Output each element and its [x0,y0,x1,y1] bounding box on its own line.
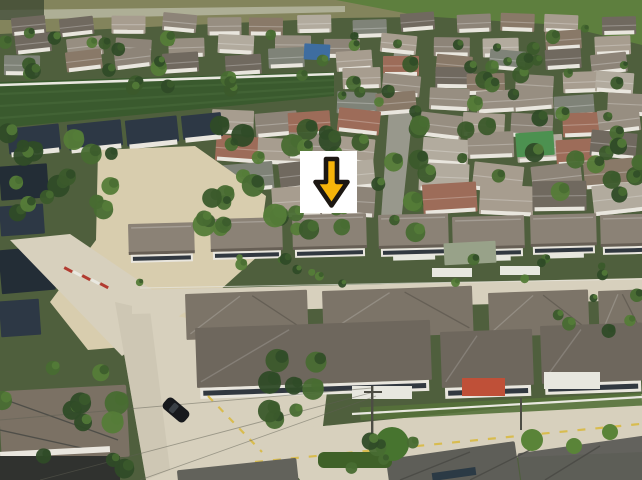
tree [48,31,61,44]
tree [224,76,236,88]
tree [627,170,640,183]
tree [24,27,35,38]
white-awning [432,268,472,277]
modern-house [600,214,642,255]
tree [566,150,584,168]
tree [381,85,394,98]
tree [531,110,548,127]
orange-awning [462,378,505,396]
tree [406,222,426,242]
arrow-marker [300,151,357,213]
tree [9,176,23,190]
house [337,107,381,135]
tree [210,116,230,136]
tree [98,37,110,49]
house [268,47,305,69]
house [65,48,103,72]
house [217,34,254,55]
tree [94,200,114,220]
tree [371,177,385,191]
house [59,16,95,38]
tree [59,168,76,185]
tree [296,70,307,81]
tree [602,324,616,338]
tree [46,361,60,375]
tree [551,182,570,201]
tree [25,63,41,79]
tree [265,30,276,41]
house [602,16,636,35]
white-awning [500,266,540,275]
tree [402,56,418,72]
tree [457,121,474,138]
tree [258,400,281,423]
tree [555,107,569,121]
tree [111,43,125,57]
tree [338,280,346,288]
tree [352,133,369,150]
tree [417,164,436,183]
tree [81,144,102,165]
house [500,13,535,32]
house [429,87,470,111]
tree [464,60,477,73]
tree [451,278,460,287]
tree [598,263,605,270]
house [422,181,478,214]
tree [338,91,347,100]
tree [389,215,400,226]
tree [126,81,140,95]
tree [106,453,120,467]
tree [319,129,342,152]
tree [478,117,496,135]
house [297,14,331,33]
tree [493,43,501,51]
tree [407,437,419,449]
aerial-scene [0,0,642,480]
tree [299,219,319,239]
tree [603,112,612,121]
tree [40,190,54,204]
tree [581,25,589,33]
house [467,131,514,159]
dark-bottom-roof [0,456,120,480]
tree [453,39,464,50]
tree [597,269,608,280]
tree [17,140,30,153]
tree [280,253,292,265]
tree [161,80,175,94]
tree [265,349,288,372]
tree [516,52,534,70]
tree [384,153,403,172]
tree [36,448,51,463]
tree [102,63,116,77]
tree [258,371,281,394]
tree [620,61,628,69]
tree [362,433,379,450]
tree [611,186,627,202]
tree [553,309,564,320]
tree [393,39,402,48]
utility-pole [371,386,373,438]
tree [492,169,506,183]
modern-house [128,222,195,263]
tree [590,294,598,302]
tree [603,171,621,189]
tree [63,129,84,150]
tree [20,196,36,212]
tree [87,37,98,48]
house [479,184,534,217]
tree [292,265,301,274]
tree [154,56,165,67]
tree [457,153,467,163]
modern-house [530,213,597,259]
house [512,87,554,112]
tree [242,174,265,197]
tree [468,254,480,266]
tree [503,57,512,66]
tree [546,30,560,44]
tree [346,462,358,474]
house [434,37,470,56]
tree [410,115,430,135]
tree [202,188,222,208]
tree [374,97,384,107]
tree [564,68,573,77]
tree [302,378,324,400]
tree [289,404,302,417]
tree [136,279,143,286]
house [162,12,198,33]
tree [160,31,175,46]
aerial-photo [0,0,642,480]
house [400,11,435,32]
tree [231,124,254,147]
tree [354,87,365,98]
tree [235,258,247,270]
tree [236,254,242,260]
tree [317,55,329,67]
tree [525,143,544,162]
tree [263,204,287,228]
tree [508,89,519,100]
tree [520,274,529,283]
tree [101,411,123,433]
tree [0,36,12,49]
tree [527,42,540,55]
tree [562,317,576,331]
tree [70,392,91,413]
house [207,17,241,35]
tree [92,364,109,381]
tree [105,391,129,415]
house [457,13,492,32]
tree [610,138,627,155]
tree [285,377,303,395]
tree [467,96,483,112]
tree [350,32,359,41]
tree [610,77,623,90]
house [545,48,582,70]
tree [74,413,92,431]
tree [333,219,350,236]
tree [624,315,635,326]
house [111,16,145,34]
tree [587,155,605,173]
tree [537,258,546,267]
tree [349,40,360,51]
tree [484,77,499,92]
utility-pole [520,398,522,430]
tree [196,210,212,226]
white-awning [544,372,600,389]
tree [308,269,315,276]
house [162,51,199,73]
tree [105,147,118,160]
tree [215,217,231,233]
tree [252,151,265,164]
tree [101,177,119,195]
tree [403,191,423,211]
tree [306,352,327,373]
tree [315,272,324,281]
